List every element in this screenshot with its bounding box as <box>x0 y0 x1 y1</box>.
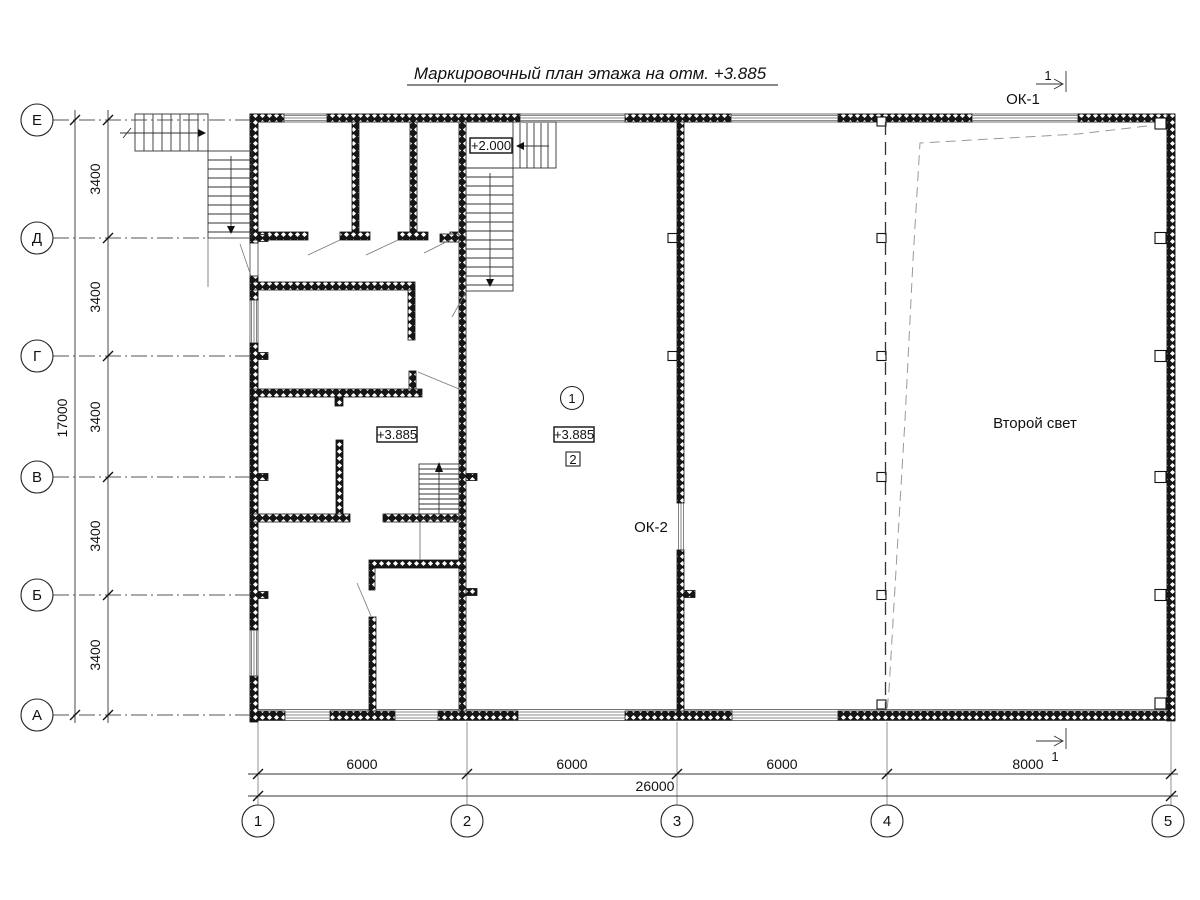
plan-labels: ОК-1 ОК-2 Второй свет +3.885 +3.885 1 2 <box>377 91 1077 536</box>
section-bottom-label: 1 <box>1051 749 1058 764</box>
axis-row-label-a: А <box>32 707 42 724</box>
section-mark-top: 1 <box>1036 68 1066 92</box>
floor-plan-canvas: Маркировочный план этажа на отм. +3.885 <box>0 0 1200 900</box>
room-marker-square-label: 2 <box>569 452 576 467</box>
exterior-stair <box>120 114 252 287</box>
elevation-center-label: +3.885 <box>554 427 594 442</box>
left-axis-grid: Е Д Г В Б А 3400 3400 3400 3400 3400 170… <box>21 104 250 731</box>
dim-3400-2: 3400 <box>87 281 103 312</box>
mid-stair <box>419 462 459 560</box>
dim-17000: 17000 <box>54 398 70 437</box>
axis-col-label-3: 3 <box>673 813 681 830</box>
dim-26000: 26000 <box>636 778 675 794</box>
window-ok2 <box>679 503 684 550</box>
dim-6000-2: 6000 <box>556 756 587 772</box>
second-light-label: Второй свет <box>993 415 1077 432</box>
stair-axis2: +2.000 <box>466 122 556 291</box>
dim-8000: 8000 <box>1012 756 1043 772</box>
axis-row-label-g: Г <box>33 348 41 365</box>
ok1-label: ОК-1 <box>1006 91 1040 108</box>
ok2-label: ОК-2 <box>634 519 668 536</box>
interior-walls <box>250 122 695 711</box>
axis-row-label-v: В <box>32 469 42 486</box>
dim-3400-5: 3400 <box>87 639 103 670</box>
bottom-axis-grid: 6000 6000 6000 8000 26000 1 2 3 4 5 <box>242 722 1184 837</box>
elevation-left-label: +3.885 <box>377 427 417 442</box>
title-block: Маркировочный план этажа на отм. +3.885 <box>407 64 778 85</box>
axis-col-label-1: 1 <box>254 813 262 830</box>
axis-col-label-2: 2 <box>463 813 471 830</box>
axis-row-label-b: Б <box>32 587 42 604</box>
dim-6000-3: 6000 <box>766 756 797 772</box>
door-swings <box>240 240 466 616</box>
axis-col-label-5: 5 <box>1164 813 1172 830</box>
dim-3400-4: 3400 <box>87 520 103 551</box>
axis-col-label-4: 4 <box>883 813 891 830</box>
dim-3400-3: 3400 <box>87 401 103 432</box>
axis-row-label-e: Е <box>32 112 42 129</box>
room-marker-circle-label: 1 <box>568 391 575 406</box>
page-title: Маркировочный план этажа на отм. +3.885 <box>414 64 767 83</box>
drawing-sheet: Маркировочный план этажа на отм. +3.885 <box>0 0 1200 900</box>
dim-6000-1: 6000 <box>346 756 377 772</box>
section-top-label: 1 <box>1044 68 1051 83</box>
elevation-stair-label: +2.000 <box>471 138 511 153</box>
dim-3400-1: 3400 <box>87 163 103 194</box>
axis-row-label-d: Д <box>32 230 42 247</box>
column-marks <box>668 117 1166 709</box>
